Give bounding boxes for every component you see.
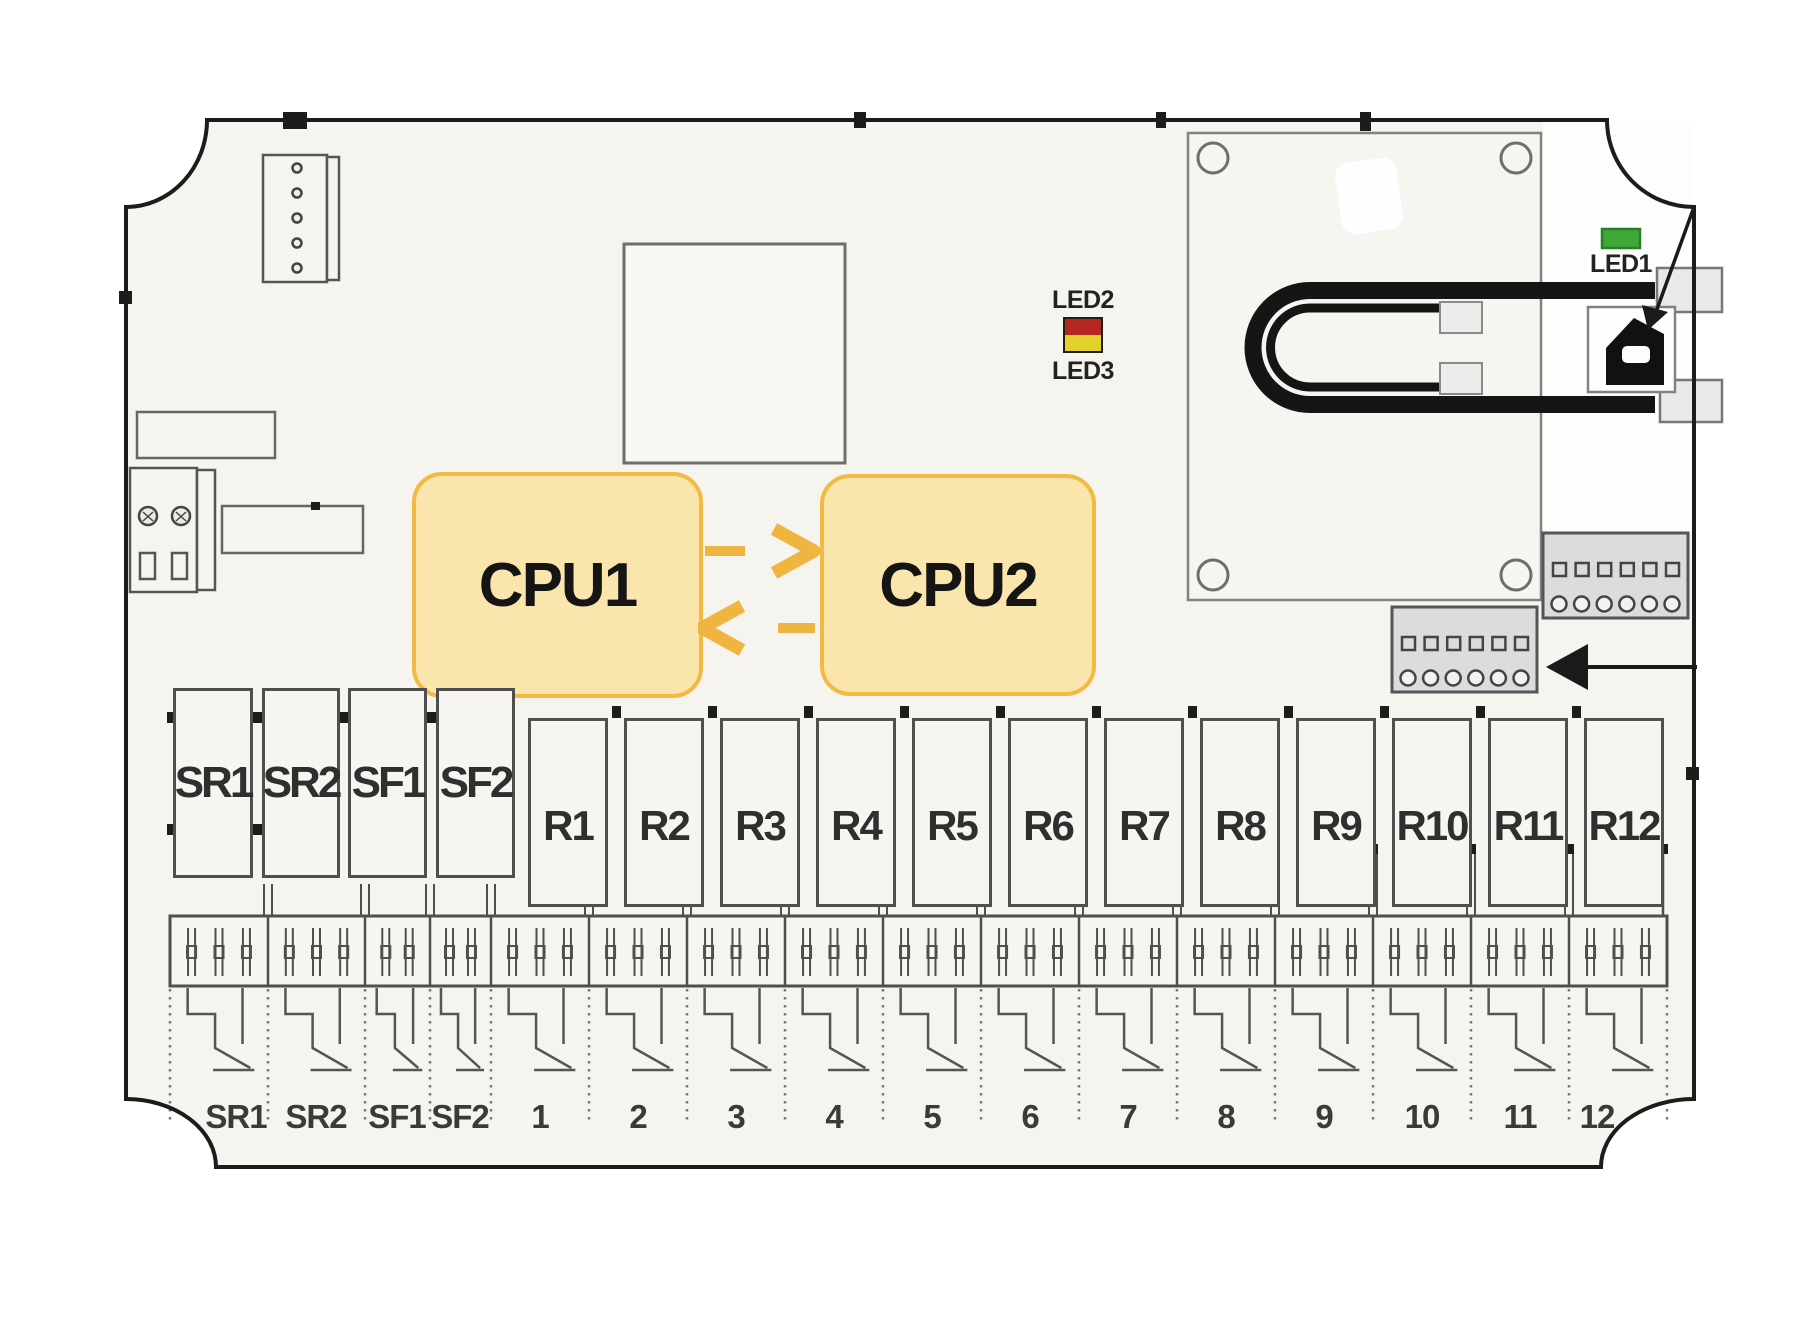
- cpu1-label: CPU1: [479, 550, 636, 621]
- cpu2-label: CPU2: [879, 550, 1036, 621]
- led1-label: LED1: [1590, 250, 1652, 279]
- led2-red: [1065, 319, 1101, 335]
- terminal-label-11: 11: [1504, 1098, 1537, 1136]
- terminal-strip: [170, 916, 1667, 986]
- usb-connector: [1588, 307, 1675, 392]
- relay-block-sr2: SR2: [262, 688, 340, 878]
- relay-block-r4-label: R4: [831, 776, 881, 850]
- relay-block-r2-label: R2: [639, 776, 689, 850]
- terminal-label-4: 4: [825, 1098, 842, 1136]
- led2-label: LED2: [1052, 286, 1114, 315]
- relay-block-r12-label: R12: [1588, 776, 1659, 850]
- comm-module: [1188, 133, 1541, 600]
- terminal-label-sf2: SF2: [431, 1098, 489, 1136]
- relay-block-r12: R12: [1584, 718, 1664, 907]
- relay-block-sr1-label: SR1: [175, 758, 252, 808]
- terminal-label-1: 1: [531, 1098, 548, 1136]
- led3-yellow: [1065, 335, 1101, 351]
- terminal-label-8: 8: [1217, 1098, 1234, 1136]
- relay-block-r4: R4: [816, 718, 896, 907]
- terminal-label-7: 7: [1119, 1098, 1136, 1136]
- relay-block-r6: R6: [1008, 718, 1088, 907]
- led1-indicator: [1602, 229, 1640, 248]
- terminal-label-6: 6: [1021, 1098, 1038, 1136]
- relay-block-r9-label: R9: [1311, 776, 1361, 850]
- main-ic: [624, 244, 845, 463]
- relay-block-r11: R11: [1488, 718, 1568, 907]
- relay-block-r1: R1: [528, 718, 608, 907]
- relay-block-r5-label: R5: [927, 776, 977, 850]
- relay-block-r9: R9: [1296, 718, 1376, 907]
- module-label-blob: [1333, 156, 1404, 236]
- cpu2-block: CPU2: [820, 474, 1096, 696]
- terminal-label-sr2: SR2: [285, 1098, 346, 1136]
- programming-connector: [263, 155, 339, 282]
- relay-block-r5: R5: [912, 718, 992, 907]
- left-component-b: [222, 506, 363, 553]
- relay-block-sf1: SF1: [348, 688, 427, 878]
- relay-block-r2: R2: [624, 718, 704, 907]
- relay-block-r1-label: R1: [543, 776, 593, 850]
- relay-block-r8-label: R8: [1215, 776, 1265, 850]
- terminal-label-sf1: SF1: [368, 1098, 426, 1136]
- relay-block-r3-label: R3: [735, 776, 785, 850]
- led2-led3-indicator: [1063, 317, 1103, 353]
- relay-block-sr1: SR1: [173, 688, 253, 878]
- relay-block-sr2-label: SR2: [263, 758, 340, 808]
- relay-block-r10: R10: [1392, 718, 1472, 907]
- power-terminal: [130, 468, 215, 592]
- relay-block-r11-label: R11: [1494, 776, 1563, 850]
- terminal-label-5: 5: [923, 1098, 940, 1136]
- terminal-label-12: 12: [1580, 1098, 1615, 1136]
- relay-block-sf1-label: SF1: [352, 758, 424, 808]
- terminal-label-9: 9: [1315, 1098, 1332, 1136]
- relay-block-r8: R8: [1200, 718, 1280, 907]
- relay-block-r6-label: R6: [1023, 776, 1073, 850]
- left-component-a: [137, 412, 275, 458]
- terminal-label-10: 10: [1405, 1098, 1440, 1136]
- cpu1-block: CPU1: [412, 472, 703, 698]
- relay-block-r3: R3: [720, 718, 800, 907]
- relay-block-r7-label: R7: [1119, 776, 1169, 850]
- terminal-label-3: 3: [727, 1098, 744, 1136]
- relay-block-sf2-label: SF2: [440, 758, 512, 808]
- relay-block-sf2: SF2: [436, 688, 515, 878]
- terminal-label-2: 2: [629, 1098, 646, 1136]
- relay-block-r10-label: R10: [1396, 776, 1467, 850]
- relay-block-r7: R7: [1104, 718, 1184, 907]
- left-component-b-tick: [311, 502, 320, 510]
- cpu-comm-arrows: [698, 500, 823, 670]
- pcb-diagram: CPU1 CPU2 LED2 LED3 LED1 SR1SR2SF1SF2 R1…: [0, 0, 1806, 1336]
- led3-label: LED3: [1052, 357, 1114, 386]
- terminal-label-sr1: SR1: [205, 1098, 266, 1136]
